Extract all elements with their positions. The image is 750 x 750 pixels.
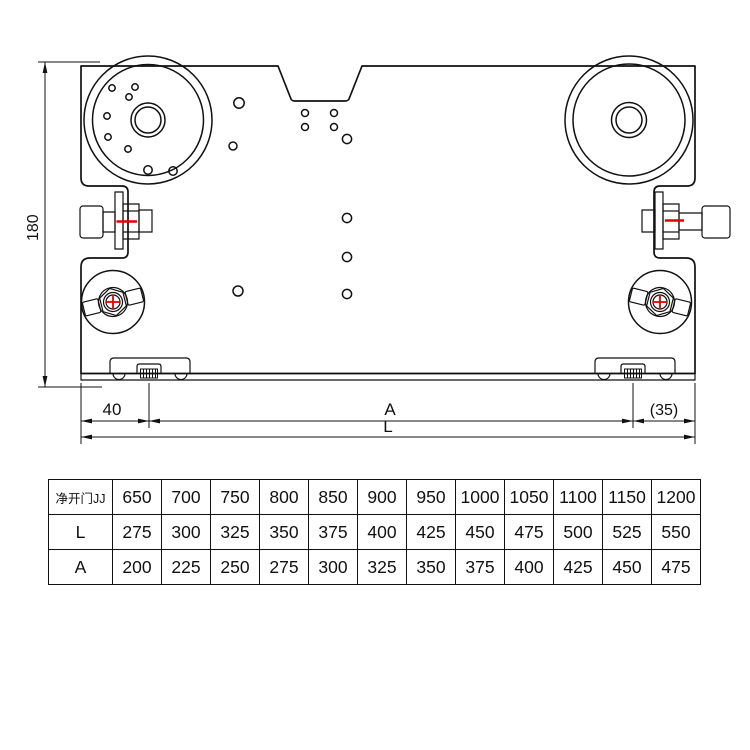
value-cell: 1050 bbox=[505, 480, 554, 515]
value-cell: 1200 bbox=[652, 480, 701, 515]
value-cell: 525 bbox=[603, 515, 652, 550]
row-label-cell: L bbox=[49, 515, 113, 550]
blueprint-page: 180 40 A (35) L bbox=[0, 0, 750, 750]
value-cell: 700 bbox=[162, 480, 211, 515]
left-pulley bbox=[84, 56, 212, 184]
value-cell: 950 bbox=[407, 480, 456, 515]
left-tension-adjuster bbox=[80, 192, 152, 249]
table-row: L275300325350375400425450475500525550 bbox=[49, 515, 701, 550]
value-cell: 475 bbox=[652, 550, 701, 585]
value-cell: 500 bbox=[554, 515, 603, 550]
value-cell: 275 bbox=[113, 515, 162, 550]
mounting-holes bbox=[229, 98, 352, 299]
dimension-bottom: 40 A (35) L bbox=[81, 383, 695, 444]
dim-label-40: 40 bbox=[103, 400, 122, 419]
value-cell: 250 bbox=[211, 550, 260, 585]
value-cell: 425 bbox=[407, 515, 456, 550]
dim-label-L: L bbox=[383, 417, 392, 436]
value-cell: 400 bbox=[358, 515, 407, 550]
value-cell: 200 bbox=[113, 550, 162, 585]
table-row: 净开门JJ65070075080085090095010001050110011… bbox=[49, 480, 701, 515]
value-cell: 425 bbox=[554, 550, 603, 585]
value-cell: 375 bbox=[309, 515, 358, 550]
value-cell: 850 bbox=[309, 480, 358, 515]
right-adjuster-knob bbox=[702, 206, 730, 238]
value-cell: 300 bbox=[309, 550, 358, 585]
left-rail-bracket bbox=[110, 358, 190, 380]
value-cell: 325 bbox=[211, 515, 260, 550]
right-wing-nut bbox=[627, 271, 692, 334]
table-row: A200225250275300325350375400425450475 bbox=[49, 550, 701, 585]
left-pulley-hub bbox=[131, 103, 165, 137]
base-plate-outline bbox=[81, 66, 695, 380]
value-cell: 1100 bbox=[554, 480, 603, 515]
value-cell: 900 bbox=[358, 480, 407, 515]
left-pulley-adjustment-holes bbox=[104, 84, 177, 175]
value-cell: 650 bbox=[113, 480, 162, 515]
value-cell: 275 bbox=[260, 550, 309, 585]
value-cell: 475 bbox=[505, 515, 554, 550]
value-cell: 750 bbox=[211, 480, 260, 515]
value-cell: 1150 bbox=[603, 480, 652, 515]
value-cell: 550 bbox=[652, 515, 701, 550]
row-label-cell: A bbox=[49, 550, 113, 585]
value-cell: 325 bbox=[358, 550, 407, 585]
value-cell: 300 bbox=[162, 515, 211, 550]
technical-drawing: 180 40 A (35) L bbox=[0, 0, 750, 460]
value-cell: 350 bbox=[407, 550, 456, 585]
dimension-table: 净开门JJ65070075080085090095010001050110011… bbox=[48, 479, 701, 585]
value-cell: 350 bbox=[260, 515, 309, 550]
value-cell: 225 bbox=[162, 550, 211, 585]
dimension-table-body: 净开门JJ65070075080085090095010001050110011… bbox=[49, 480, 701, 585]
row-label-cell: 净开门JJ bbox=[49, 480, 113, 515]
dim-label-35: (35) bbox=[650, 402, 678, 419]
value-cell: 450 bbox=[456, 515, 505, 550]
value-cell: 450 bbox=[603, 550, 652, 585]
value-cell: 1000 bbox=[456, 480, 505, 515]
value-cell: 375 bbox=[456, 550, 505, 585]
right-rail-bracket bbox=[595, 358, 675, 380]
left-wing-nut bbox=[80, 271, 145, 334]
left-adjuster-knob bbox=[80, 206, 103, 238]
value-cell: 800 bbox=[260, 480, 309, 515]
value-cell: 400 bbox=[505, 550, 554, 585]
right-pulley bbox=[565, 56, 693, 184]
dim-label-180: 180 bbox=[25, 214, 42, 241]
dimension-height-180: 180 bbox=[25, 62, 102, 387]
right-tension-adjuster bbox=[642, 192, 730, 249]
